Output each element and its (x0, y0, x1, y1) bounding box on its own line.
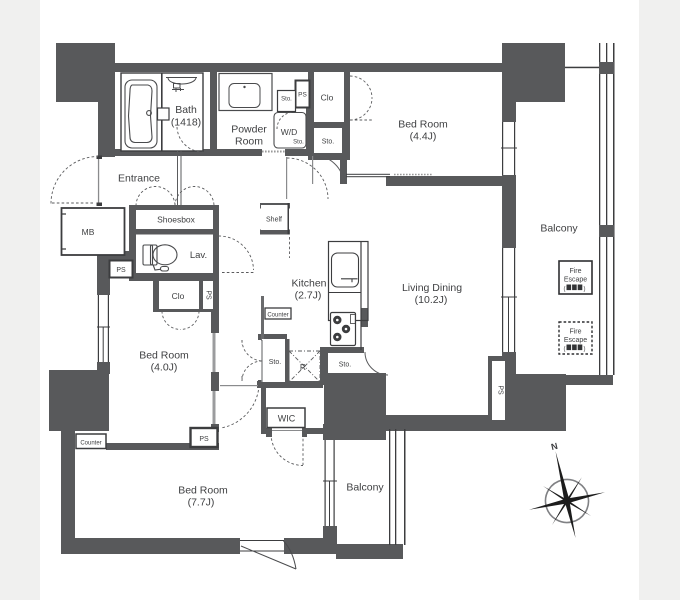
svg-text:Living Dining: Living Dining (402, 282, 462, 294)
svg-text:R: R (300, 362, 306, 372)
svg-text:(1418): (1418) (171, 117, 201, 129)
svg-text:(: ( (564, 347, 566, 353)
svg-text:Entrance: Entrance (118, 173, 160, 185)
svg-text:Bed Room: Bed Room (139, 350, 189, 362)
svg-text:Shoesbox: Shoesbox (157, 215, 196, 225)
svg-text:Sto.: Sto. (269, 359, 282, 366)
svg-text:PS: PS (497, 385, 504, 395)
svg-text:Powder: Powder (231, 124, 267, 136)
svg-text:W/D: W/D (281, 127, 298, 137)
svg-text:Room: Room (235, 136, 263, 148)
svg-text:Clo: Clo (172, 291, 185, 301)
svg-text:Escape: Escape (564, 277, 587, 284)
svg-text:Fire: Fire (569, 329, 581, 336)
svg-text:Lav.: Lav. (190, 250, 207, 261)
svg-text:PS: PS (298, 92, 307, 99)
svg-text:Clo: Clo (321, 93, 334, 103)
svg-text:Fire: Fire (569, 268, 581, 275)
svg-text:MB: MB (82, 227, 95, 237)
svg-text:PS: PS (199, 436, 209, 443)
svg-text:Bath: Bath (175, 104, 197, 116)
svg-text:(: ( (564, 287, 566, 293)
svg-text:(4.4J): (4.4J) (410, 131, 437, 143)
svg-text:Counter: Counter (267, 313, 288, 319)
svg-text:WIC: WIC (278, 414, 296, 424)
svg-text:Balcony: Balcony (346, 482, 384, 494)
svg-text:(10.2J): (10.2J) (415, 294, 448, 306)
svg-text:Bed Room: Bed Room (398, 119, 448, 131)
svg-text:Bed Room: Bed Room (178, 485, 228, 497)
svg-text:(4.0J): (4.0J) (151, 362, 178, 374)
svg-text:PS: PS (116, 267, 126, 274)
svg-text:Kitchen: Kitchen (291, 278, 326, 290)
svg-text:Sto.: Sto. (339, 362, 352, 369)
svg-text:Sto.: Sto. (281, 97, 292, 103)
svg-text:Counter: Counter (80, 441, 101, 447)
svg-text:PS: PS (205, 290, 212, 300)
svg-text:Shelf: Shelf (266, 217, 282, 224)
svg-text:Sto.: Sto. (293, 140, 304, 146)
svg-text:(7.7J): (7.7J) (188, 497, 215, 509)
svg-text:): ) (584, 287, 586, 293)
svg-text:Sto.: Sto. (322, 139, 335, 146)
svg-text:(2.7J): (2.7J) (295, 290, 322, 302)
svg-text:Balcony: Balcony (540, 223, 578, 235)
svg-text:Escape: Escape (564, 337, 587, 344)
svg-text:): ) (584, 347, 586, 353)
